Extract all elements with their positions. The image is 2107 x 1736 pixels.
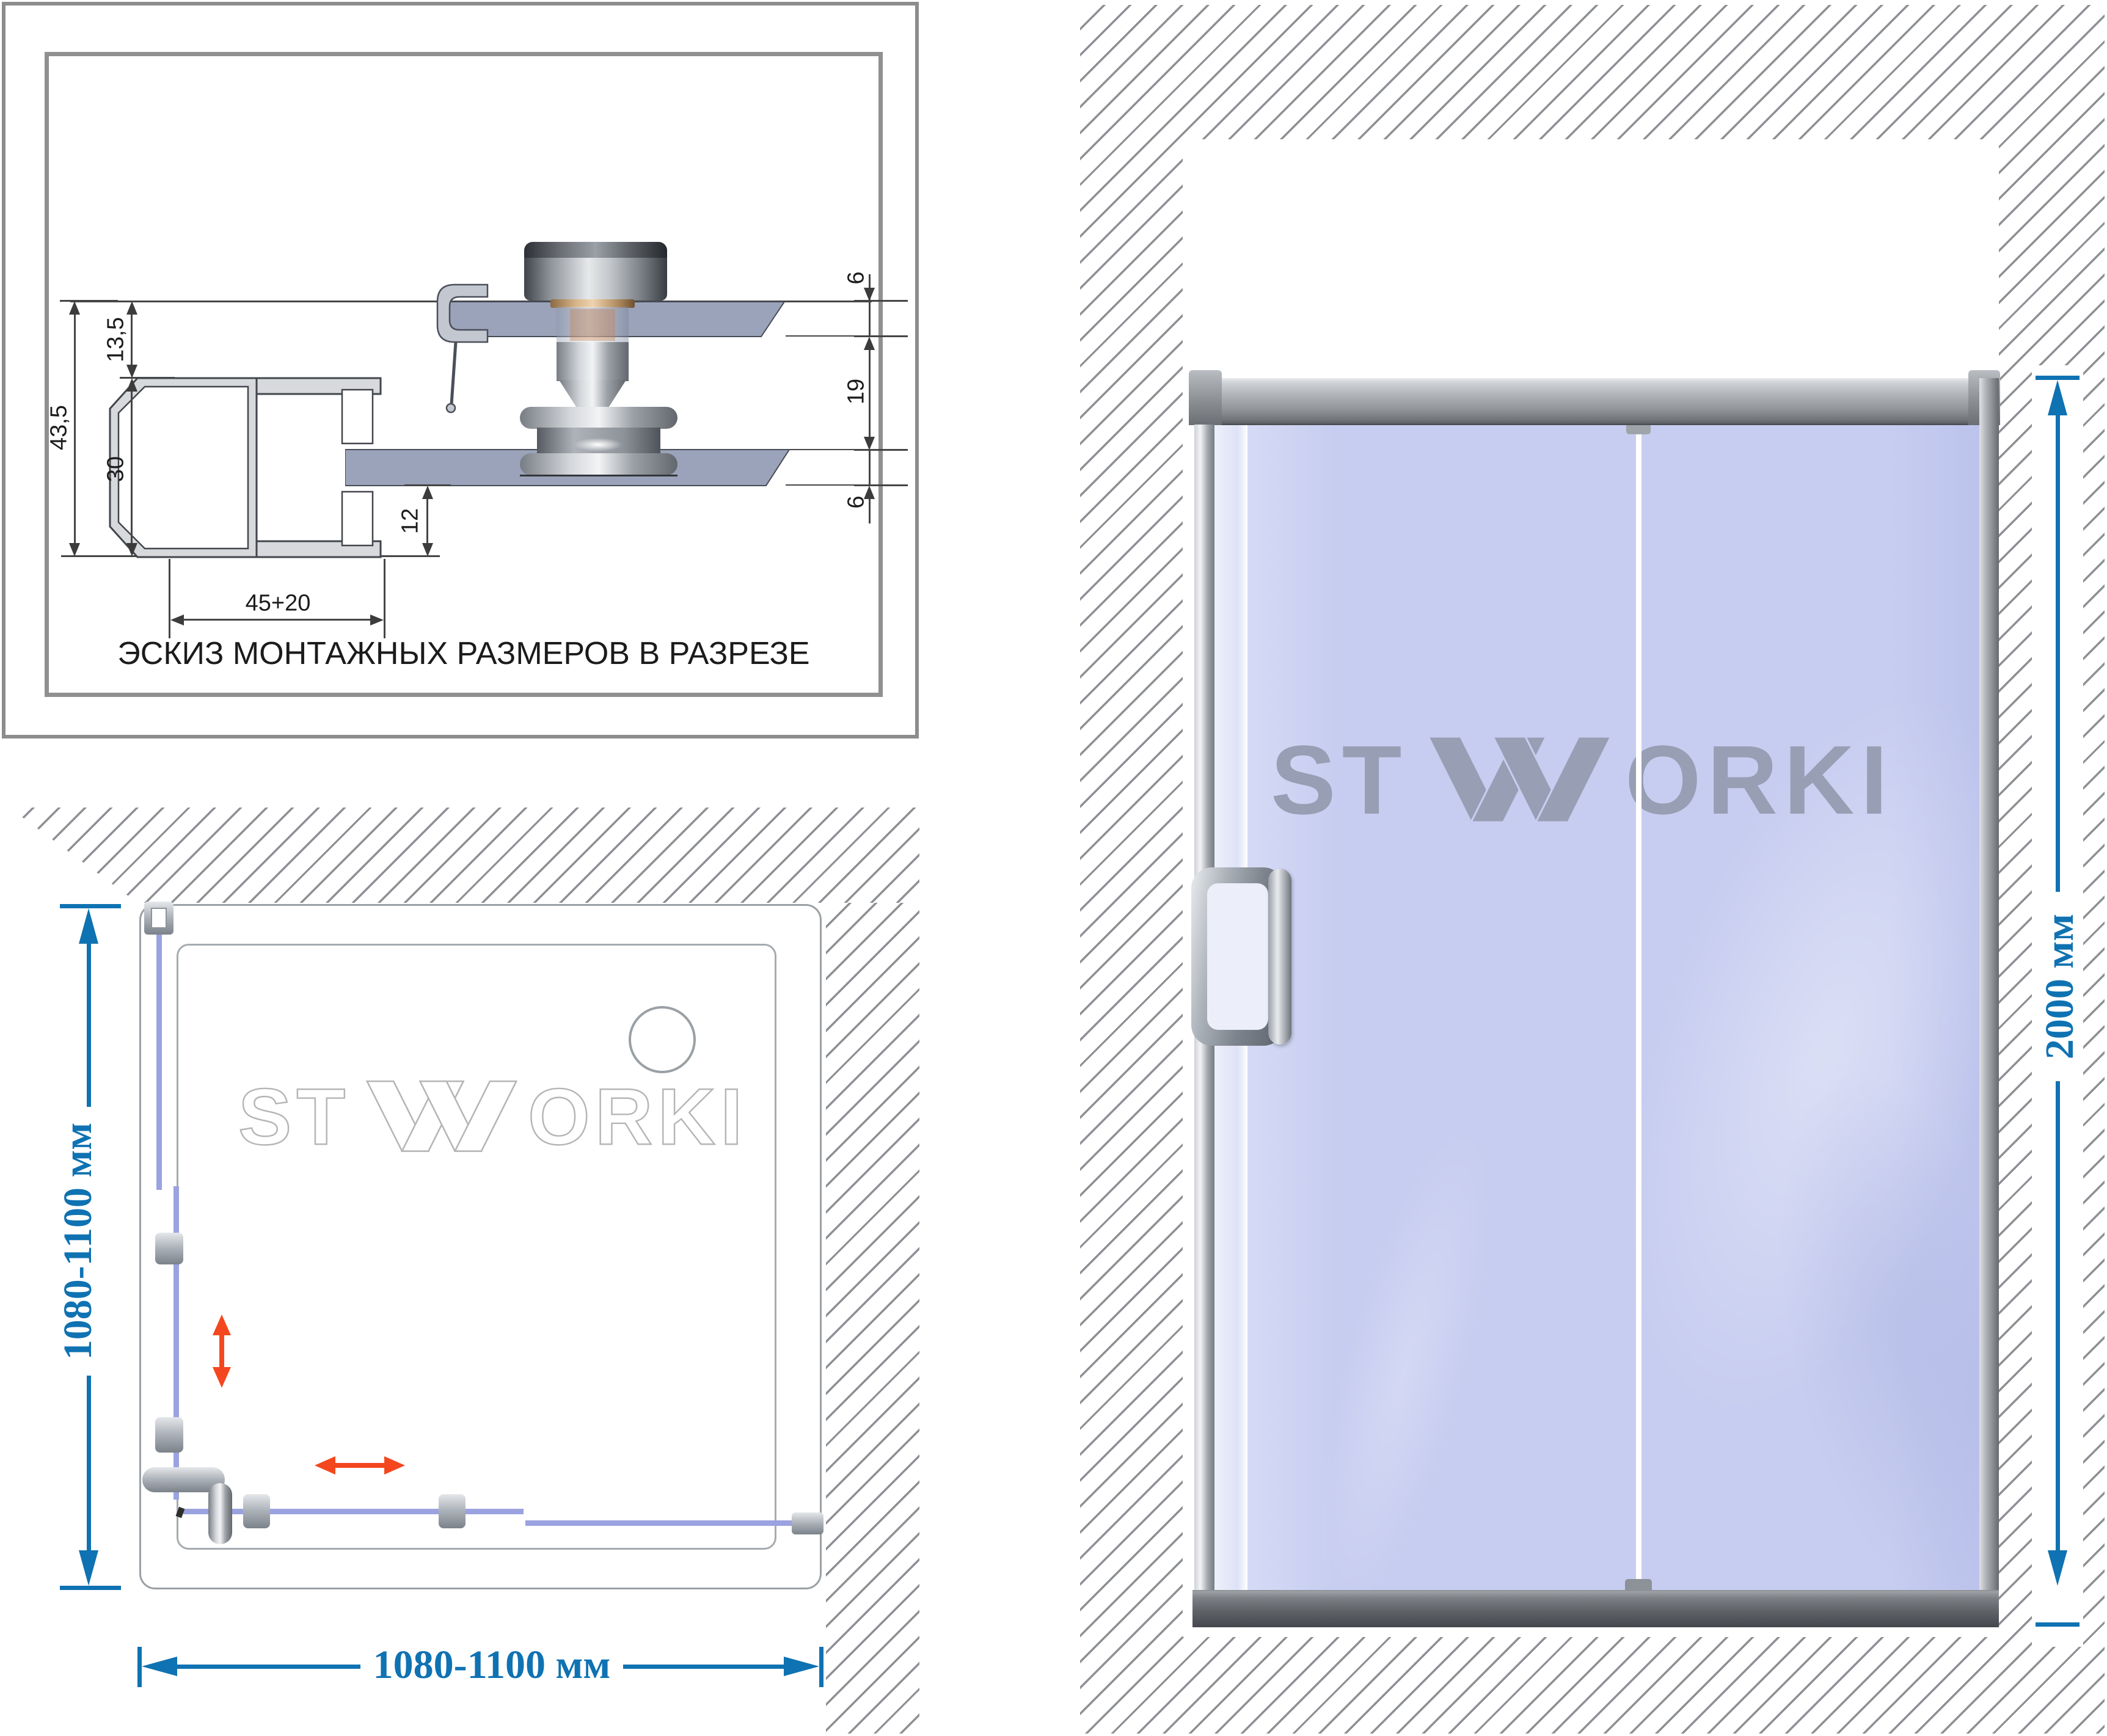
dim-line-right-d xyxy=(869,450,871,486)
plan-vdim-tick-bottom xyxy=(60,1586,121,1590)
dimension-label-overall-height: 43,5 xyxy=(46,405,73,450)
plan-hdim-tick-left xyxy=(137,1647,142,1687)
dimension-label-top-offset: 13,5 xyxy=(103,317,130,362)
slide-arrow-horizontal xyxy=(315,1456,405,1475)
roller-knob-top xyxy=(524,242,667,259)
roller-shaft xyxy=(557,342,629,381)
dim-line-4520 xyxy=(184,619,370,621)
roller-wheel-top-flange xyxy=(520,407,677,429)
plan-hdim-tick-right xyxy=(819,1647,823,1687)
dim-arrow-down xyxy=(864,437,875,450)
watermark-text-st: ST xyxy=(238,1078,350,1153)
plan-vdim-line-a xyxy=(87,944,91,1107)
plan-width-label: 1080-1100 мм xyxy=(373,1642,611,1688)
tick-r2 xyxy=(854,335,908,337)
door-bottom-rail xyxy=(1192,1590,1999,1627)
plan-wall-bracket-top-inner xyxy=(151,908,167,928)
door-top-rail-cap-left xyxy=(1189,370,1222,425)
door-top-rail xyxy=(1192,378,1999,425)
drawing-canvas: 43,5 13,5 30 12 45+20 6 19 6 ЭСКИЗ МОНТА… xyxy=(0,0,2107,1736)
dimension-label-glass-bottom: 6 xyxy=(844,495,870,508)
door-panel-divider xyxy=(1636,425,1641,1590)
door-dim-tick-top xyxy=(2036,376,2080,380)
dim-line-12 xyxy=(426,499,428,543)
door-logo-text-st: ST xyxy=(1271,733,1408,825)
door-height-label: 2000 мм xyxy=(2037,914,2083,1059)
door-right-wall-profile xyxy=(1979,378,1999,1627)
dim-arrow-down xyxy=(422,543,433,556)
plan-depth-label: 1080-1100 мм xyxy=(55,1123,101,1360)
dim-arrow-down xyxy=(2048,1550,2067,1586)
plan-wall-bracket-right xyxy=(792,1512,823,1534)
plan-vdim-tick-top xyxy=(60,904,121,908)
dim-arrow-down xyxy=(864,288,875,301)
dim-arrow-up xyxy=(422,486,433,499)
roller-wheel-bottom-line xyxy=(520,475,677,476)
ext-line-4520-left xyxy=(169,559,170,638)
divider-guide-top xyxy=(1626,425,1651,434)
plan-clip-mid-2 xyxy=(155,1417,183,1453)
dimension-label-roller-gap: 19 xyxy=(844,379,870,404)
dim-arrow-right xyxy=(370,615,384,625)
door-handle-ring-inner xyxy=(1207,883,1268,1030)
door-dim-line-a xyxy=(2056,415,2060,892)
dim-arrow-up xyxy=(2048,380,2067,415)
dim-line-135 xyxy=(131,315,133,365)
dim-arrow-up xyxy=(126,378,137,392)
dimension-label-glass-top: 6 xyxy=(844,271,870,284)
plan-glass-left-upper xyxy=(156,917,162,1190)
door-logo: ST ORKI xyxy=(1271,733,1906,825)
dim-arrow-up xyxy=(69,301,80,315)
dim-arrow-down xyxy=(126,543,137,556)
cross-section-caption: ЭСКИЗ МОНТАЖНЫХ РАЗМЕРОВ В РАЗРЕЗЕ xyxy=(45,635,883,672)
roller-shaft-core xyxy=(570,309,615,341)
dim-arrow-down xyxy=(79,1550,98,1586)
door-dim-line-b xyxy=(2056,1081,2060,1550)
dim-line-435 xyxy=(74,315,76,543)
wall-profile-section xyxy=(107,374,388,564)
tick-r1 xyxy=(854,300,908,302)
dim-arrow-right xyxy=(784,1657,819,1676)
dim-arrow-up xyxy=(126,301,137,315)
roller-wheel-highlight xyxy=(568,436,629,453)
door-logo-text-orki: ORKI xyxy=(1625,733,1894,825)
dim-arrow-left xyxy=(170,615,184,625)
dim-line-right-b xyxy=(869,301,871,337)
hook-clip xyxy=(431,282,498,417)
door-glass: ST ORKI xyxy=(1214,425,1979,1590)
dim-arrow-up xyxy=(79,908,98,944)
dimension-label-profile-height: 30 xyxy=(103,456,130,482)
plan-wall-hatch-top xyxy=(9,808,919,903)
watermark-text-orki: ORKI xyxy=(528,1078,748,1153)
plan-handle-pill-vertical xyxy=(208,1483,232,1544)
plan-roller-2 xyxy=(439,1494,466,1528)
dim-arrow-down xyxy=(69,543,80,556)
roller-wheel-bottom-flange xyxy=(520,453,677,475)
drain-circle xyxy=(629,1006,696,1073)
plan-wall-hatch-right xyxy=(826,903,919,1734)
plan-hdim-line-b xyxy=(623,1665,784,1669)
roller-knob-body xyxy=(524,258,667,301)
plan-glass-bottom-door xyxy=(525,1520,794,1526)
plan-roller-1 xyxy=(243,1494,270,1528)
plan-watermark-logo: ST ORKI xyxy=(238,1078,758,1153)
door-handle-bar xyxy=(1268,869,1291,1045)
ext-line-4520-right xyxy=(384,559,385,638)
plan-vdim-line-b xyxy=(87,1376,91,1550)
dim-arrow-left xyxy=(142,1657,177,1676)
door-dim-tick-bottom xyxy=(2036,1622,2080,1627)
dim-arrow-up xyxy=(864,337,875,350)
dim-arrow-down xyxy=(126,365,137,378)
divider-guide-bottom xyxy=(1625,1579,1652,1590)
plan-glass-bottom-fixed xyxy=(183,1509,524,1514)
dimension-label-bottom-inset: 12 xyxy=(398,508,424,534)
dim-line-30 xyxy=(131,392,133,543)
tick-r3 xyxy=(854,449,908,451)
dimension-label-profile-width: 45+20 xyxy=(246,591,311,617)
plan-hdim-line-a xyxy=(177,1665,360,1669)
plan-clip-mid-1 xyxy=(155,1233,183,1264)
slide-arrow-vertical xyxy=(213,1315,231,1388)
tick-r4 xyxy=(854,484,908,486)
